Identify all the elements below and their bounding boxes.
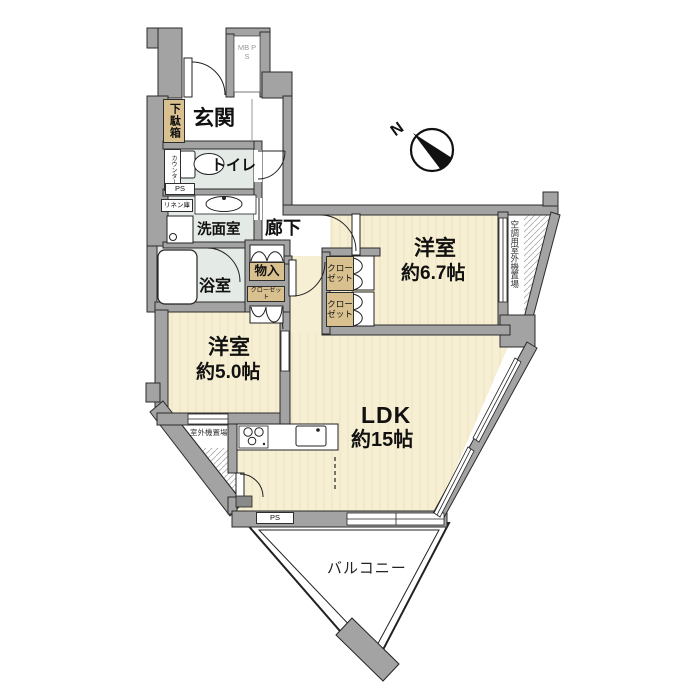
ps-upper-label: PS (165, 183, 195, 195)
room-label-western-b: 洋室 (208, 336, 250, 360)
floor-plan: 玄関 下駄箱 カウンター トイレ PS リネン庫 洗面室 浴室 廊下 物入 クロ… (0, 0, 700, 700)
room-size-ldk: 約15帖 (351, 429, 413, 452)
closet-b-label: クローゼット (326, 292, 354, 327)
kitchen-door-leaf (236, 473, 244, 498)
compass (411, 129, 453, 171)
linen-label: リネン庫 (161, 199, 193, 212)
toilet-tank (180, 151, 195, 178)
aircon-space-label: 空調用室外機置場 (509, 220, 519, 315)
ps-lower-label: PS (256, 512, 294, 524)
utility-box (236, 496, 252, 507)
sink-faucet (316, 428, 320, 432)
room-label-genkan: 玄関 (193, 107, 235, 131)
floor-plan-drawing (0, 0, 700, 700)
kitchen-sink (296, 426, 326, 446)
burner-dot (263, 443, 265, 445)
outdoor-unit-label: 室外機置場 (190, 429, 228, 438)
closet-a-label: クローゼット (326, 256, 354, 291)
storage-in-label: 物入 (249, 262, 285, 281)
room-label-washroom: 洗面室 (197, 222, 241, 239)
room-label-hallway: 廊下 (265, 218, 301, 239)
entrance-door-leaf (184, 58, 192, 97)
room-size-western-b: 約5.0帖 (196, 362, 260, 384)
room-label-toilet: トイレ (211, 157, 256, 174)
balcony-outline (246, 523, 449, 681)
basin-faucet (222, 196, 226, 200)
ldk-door-leaf (289, 260, 296, 296)
room-size-western-a: 約6.7帖 (401, 263, 465, 285)
washer-space (167, 216, 193, 243)
room-label-western-a: 洋室 (414, 237, 456, 261)
shoe-cabinet-label: 下駄箱 (163, 99, 185, 143)
room-label-bathroom: 浴室 (199, 278, 231, 296)
room-label-balcony: バルコニー (327, 560, 407, 577)
entrance-door-arc (192, 62, 225, 95)
mb-ps-label: MB PS (237, 44, 257, 61)
bathtub (158, 250, 197, 304)
room-label-ldk: LDK (361, 402, 411, 428)
closet-small-label: クローゼット (247, 286, 285, 302)
